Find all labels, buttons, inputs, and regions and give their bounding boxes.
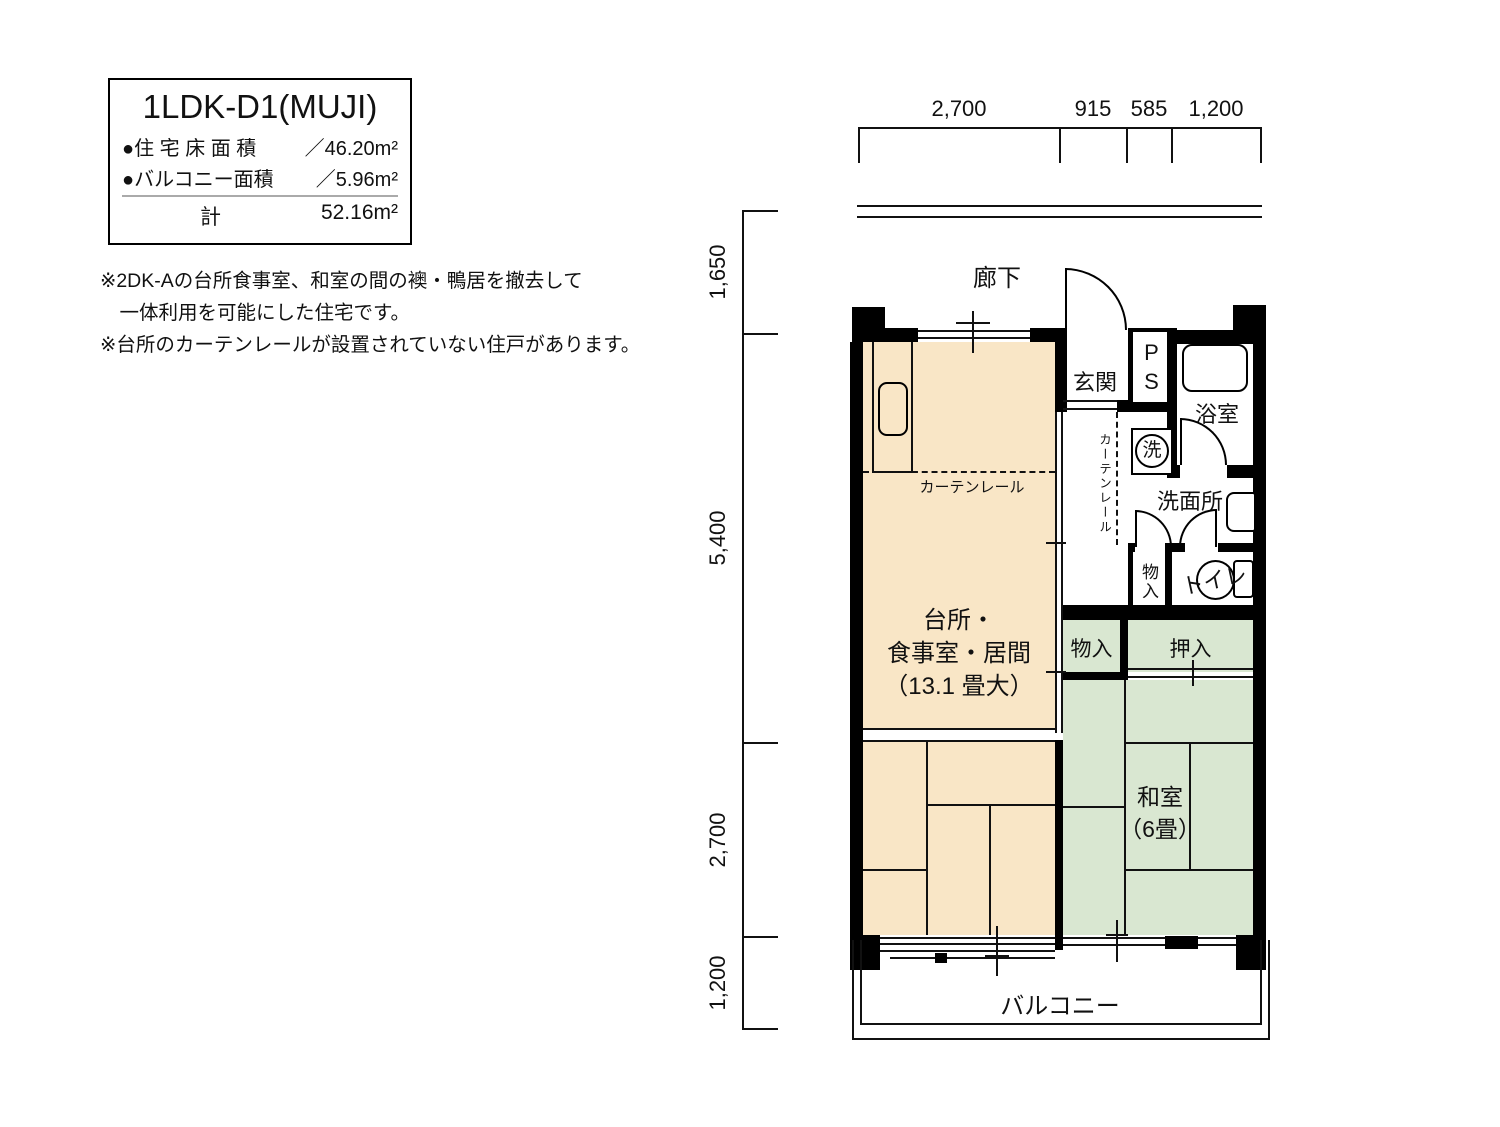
room-label-closet-hall: 物入 [1136,558,1161,606]
window-line [880,950,1055,952]
balcony-rail [1260,940,1262,1025]
floorplan-page: 1LDK-D1(MUJI) ●住 宅 床 面 積 ／46.20m² ●バルコニー… [0,0,1500,1127]
window-tick [1116,920,1118,962]
balcony-rail [860,1023,1262,1025]
corridor-line [857,216,1262,218]
ldk-mat-room-floor [863,742,1055,935]
wall [1055,935,1063,950]
window-frame-block [935,953,947,963]
tatami-line [927,804,1055,806]
room-label-balcony: バルコニー [910,986,1210,1021]
floor-area-row: ●住 宅 床 面 積 ／46.20m² [122,132,398,161]
entrance-door-arc [1065,268,1127,330]
info-divider [122,195,398,197]
room-label-washitsu: 和室 [1090,778,1230,812]
window-line [1063,944,1236,946]
wall [852,307,885,342]
dim-top-1200: 1,200 [1166,96,1266,122]
dim-tick [742,936,778,938]
washing-machine-icon: 洗 [1135,434,1169,468]
wall [1117,400,1133,412]
wall [1128,552,1133,607]
note-line-2: 一体利用を可能にした住宅です。 [100,297,640,329]
tatami-line [863,869,927,871]
ldk-label-3: （13.1 畳大） [862,666,1056,701]
window-tick [1106,934,1128,936]
note-line-3: ※台所のカーテンレールが設置されていない住戸があります。 [100,329,640,361]
sliding-door-line [1061,412,1063,733]
dim-left-1200: 1,200 [705,933,731,1033]
wall [1120,620,1128,672]
bathtub [1182,344,1248,392]
wall [850,935,880,970]
balcony-area-value: ／5.96m² [316,163,398,192]
window-line [890,957,1055,959]
dim-left-1650: 1,650 [705,222,731,322]
room-label-corridor: 廊下 [947,258,1047,293]
total-label: 計 [200,201,221,231]
dim-tick [742,210,778,212]
room-label-ps: PS [1138,339,1164,399]
window-line [880,937,1055,939]
wall [1233,305,1266,332]
window-line [918,337,1030,339]
dim-top-2700: 2,700 [909,96,1009,122]
dim-tick [742,742,778,744]
notes-block: ※2DK-Aの台所食事室、和室の間の襖・鴨居を撤去して 一体利用を可能にした住宅… [100,265,640,362]
sliding-door-tick [1046,542,1066,544]
wall [1227,465,1266,478]
wall-washitsu-left [1055,740,1063,935]
note-line-1: ※2DK-Aの台所食事室、和室の間の襖・鴨居を撤去して [100,265,640,297]
ldk-label-1: 台所・ [862,600,1056,635]
corridor-line [857,205,1262,207]
washbasin [1226,492,1256,532]
threshold-line [863,740,1055,742]
total-value: 52.16m² [321,201,398,231]
dim-left-5400: 5,400 [705,488,731,588]
balcony-rail-outer [852,1038,1270,1040]
balcony-rail [860,940,862,1025]
floor-area-label: ●住 宅 床 面 積 [122,132,256,161]
balcony-area-label: ●バルコニー面積 [122,163,274,192]
wall [1167,330,1266,344]
sliding-door-line [1128,676,1253,678]
kitchen-sink [878,382,908,436]
dim-tick [1059,127,1061,163]
tatami-line [926,742,928,935]
balcony-rail-outer [852,940,854,1040]
unit-title: 1LDK-D1(MUJI) [122,88,398,126]
entrance-step-line [1063,400,1117,402]
window-frame-block [1165,936,1198,949]
wall [1128,543,1135,552]
curtain-rail-label-corridor: カーテンレール [1095,424,1114,544]
sliding-door-tick [1192,660,1194,686]
ldk-label-2: 食事室・居間 [862,633,1056,668]
dim-tick [1260,127,1262,163]
room-label-entrance: 玄関 [1063,365,1127,397]
entrance-step-line [1063,408,1117,410]
window-line [1063,937,1236,939]
curtain-rail-dashed-line-vertical [1116,412,1118,545]
tatami-line [1125,869,1253,871]
room-label-washitsu-size: （6畳） [1090,810,1230,844]
wall [1062,672,1128,680]
wall [1218,543,1266,552]
total-area-row: 計 52.16m² [122,201,398,231]
window-line [880,943,1055,945]
window-tick [956,322,990,324]
dim-tick [858,127,860,163]
sliding-door-line [1128,668,1253,670]
wall [1062,605,1266,620]
balcony-area-row: ●バルコニー面積 ／5.96m² [122,163,398,192]
dim-tick [742,1028,778,1030]
curtain-rail-dashed-line-kitchen [863,471,1055,473]
unit-info-box: 1LDK-D1(MUJI) ●住 宅 床 面 積 ／46.20m² ●バルコニー… [108,78,412,245]
floor-area-value: ／46.20m² [305,132,398,161]
dim-tick [1126,127,1128,163]
dim-left-2700: 2,700 [705,790,731,890]
window-line [918,330,1030,332]
threshold-line [863,728,1055,730]
dim-tick [1171,127,1173,163]
room-label-oshiire: 押入 [1128,633,1253,663]
wall-right [1253,330,1266,970]
window-tick [985,955,1009,957]
dim-tick [742,333,778,335]
window-tick [996,926,998,976]
tatami-line [989,805,991,935]
curtain-rail-label-kitchen: カーテンレール [872,476,1072,497]
wall [885,328,918,342]
room-label-closet-small: 物入 [1063,633,1120,663]
balcony-rail-outer [1268,940,1270,1040]
window-tick [972,311,974,353]
